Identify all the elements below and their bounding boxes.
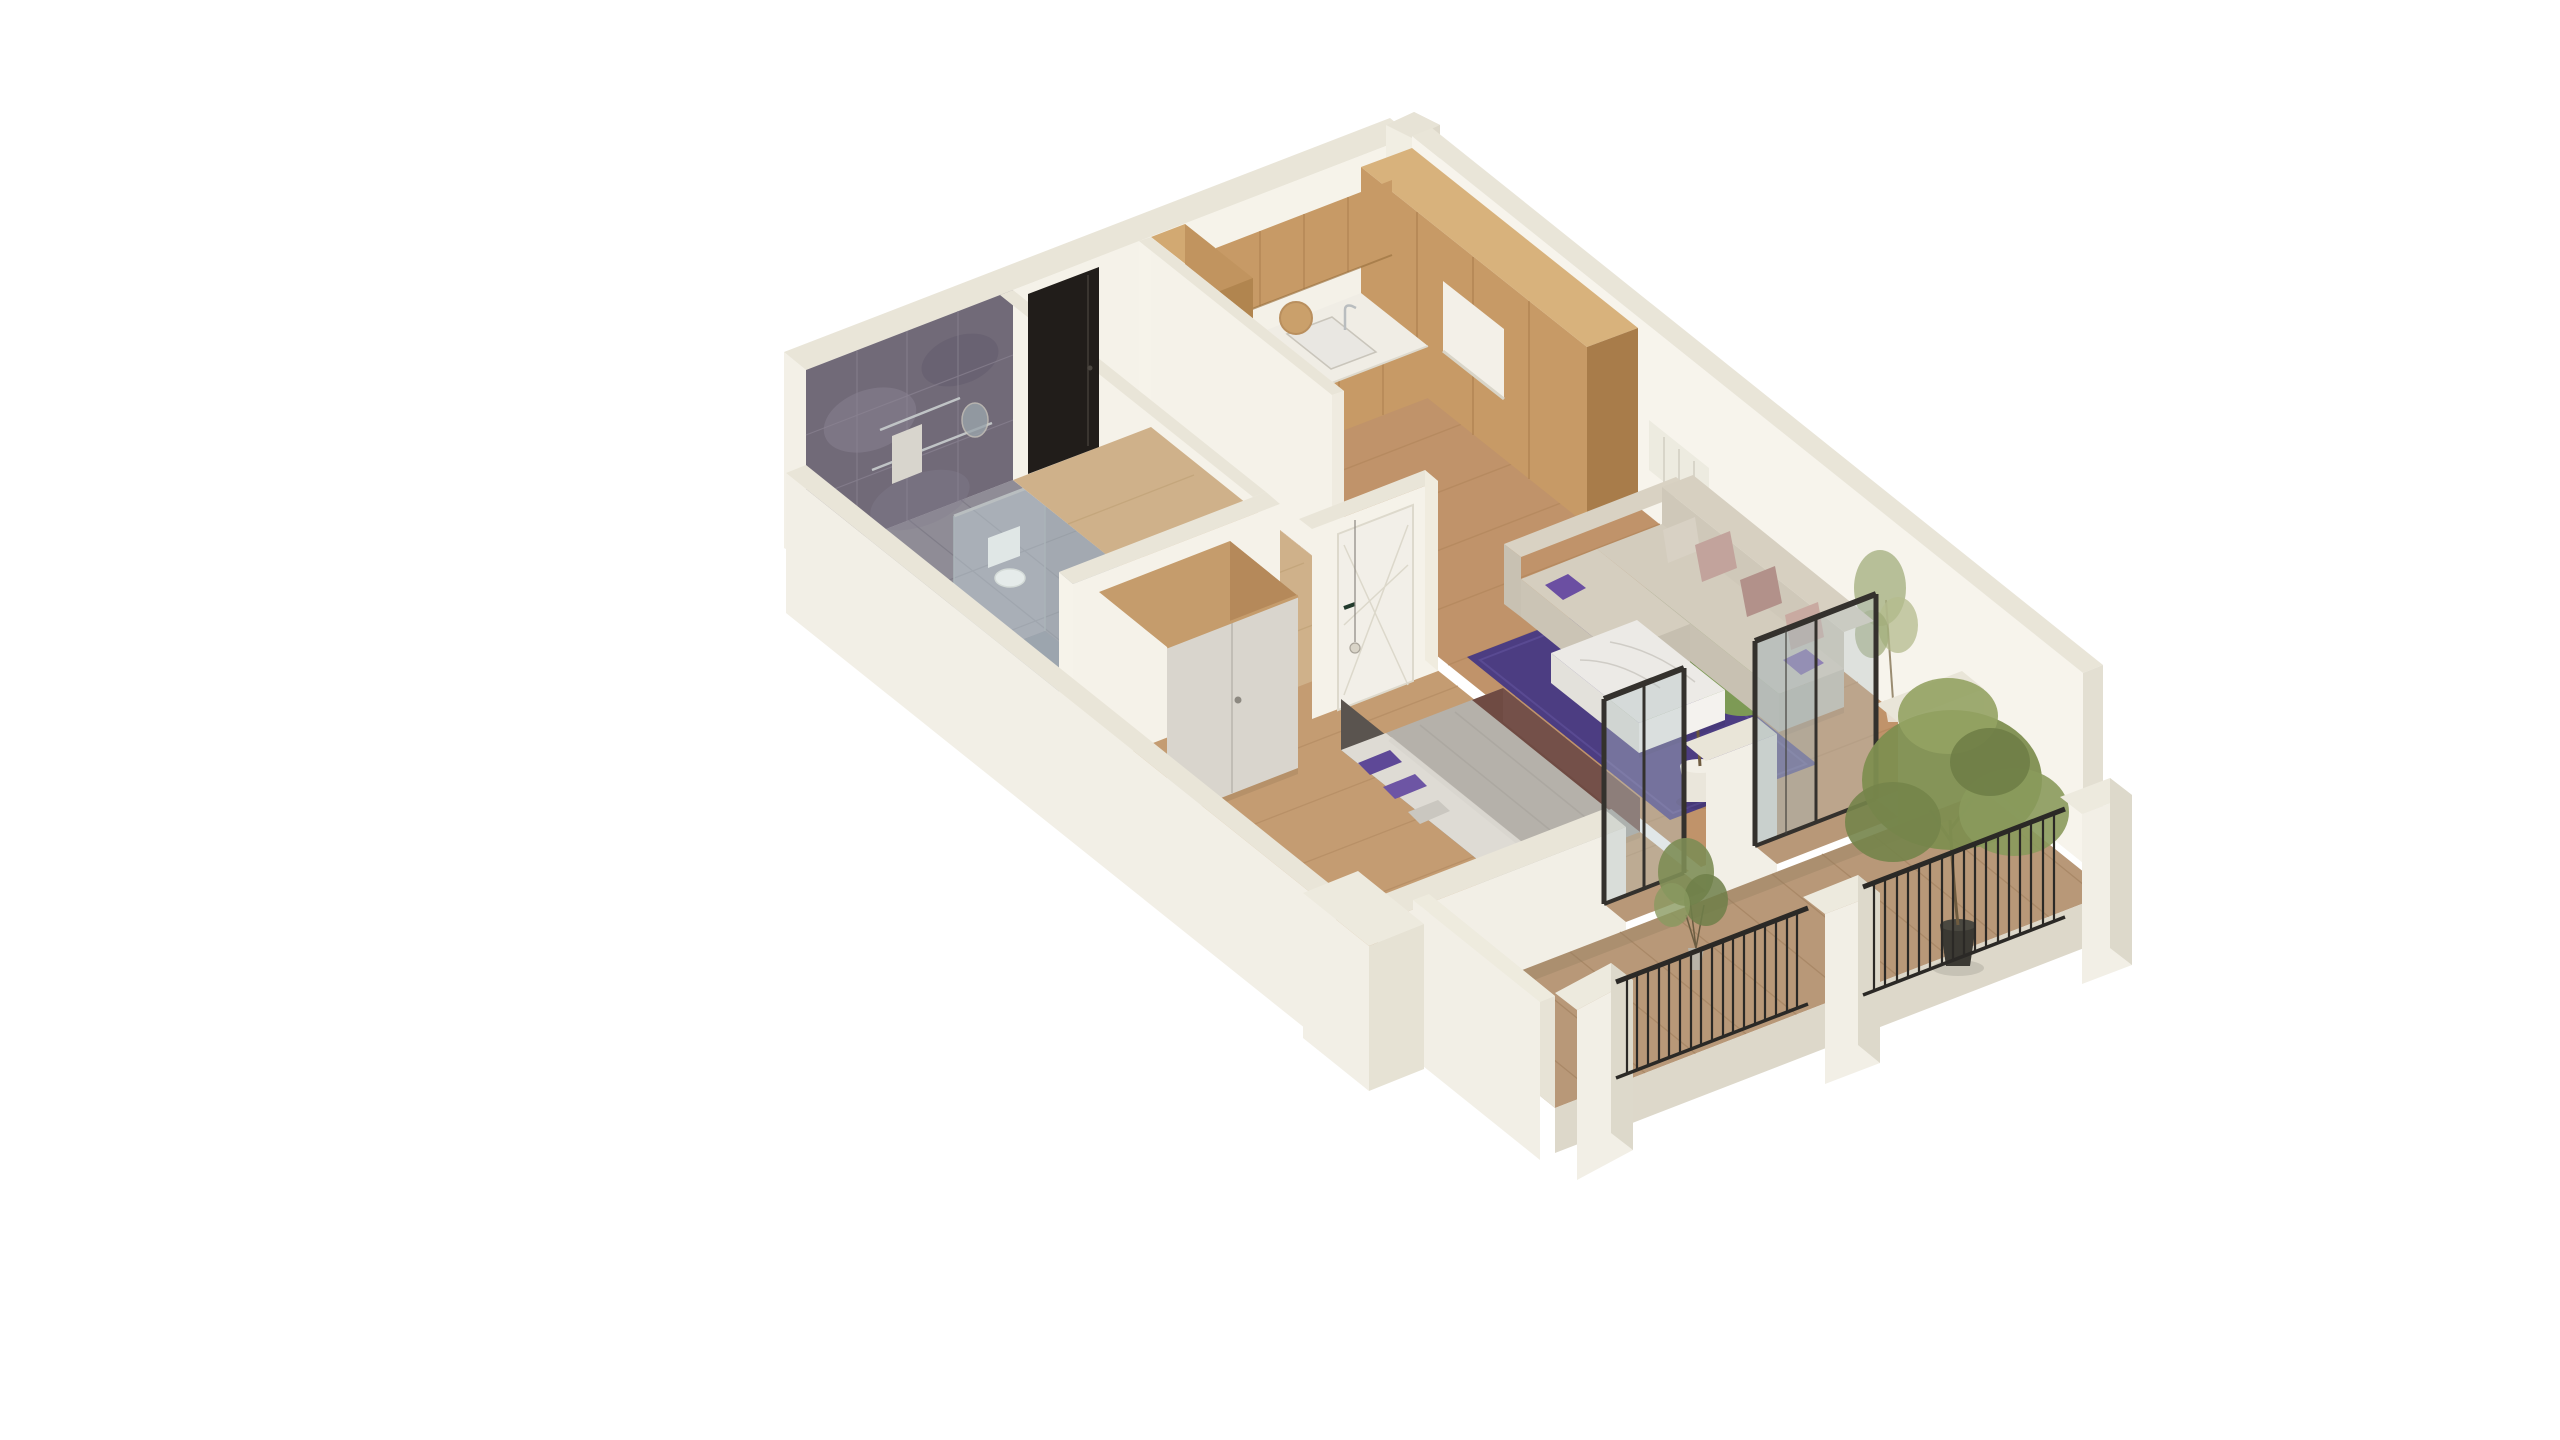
bathroom-mirror bbox=[962, 403, 988, 437]
apartment-render-canvas bbox=[0, 0, 2560, 1440]
bedroom-door bbox=[1338, 505, 1413, 710]
wardrobe-knob bbox=[1235, 697, 1242, 704]
entrance-door bbox=[1028, 267, 1099, 474]
round-board bbox=[1280, 302, 1312, 334]
